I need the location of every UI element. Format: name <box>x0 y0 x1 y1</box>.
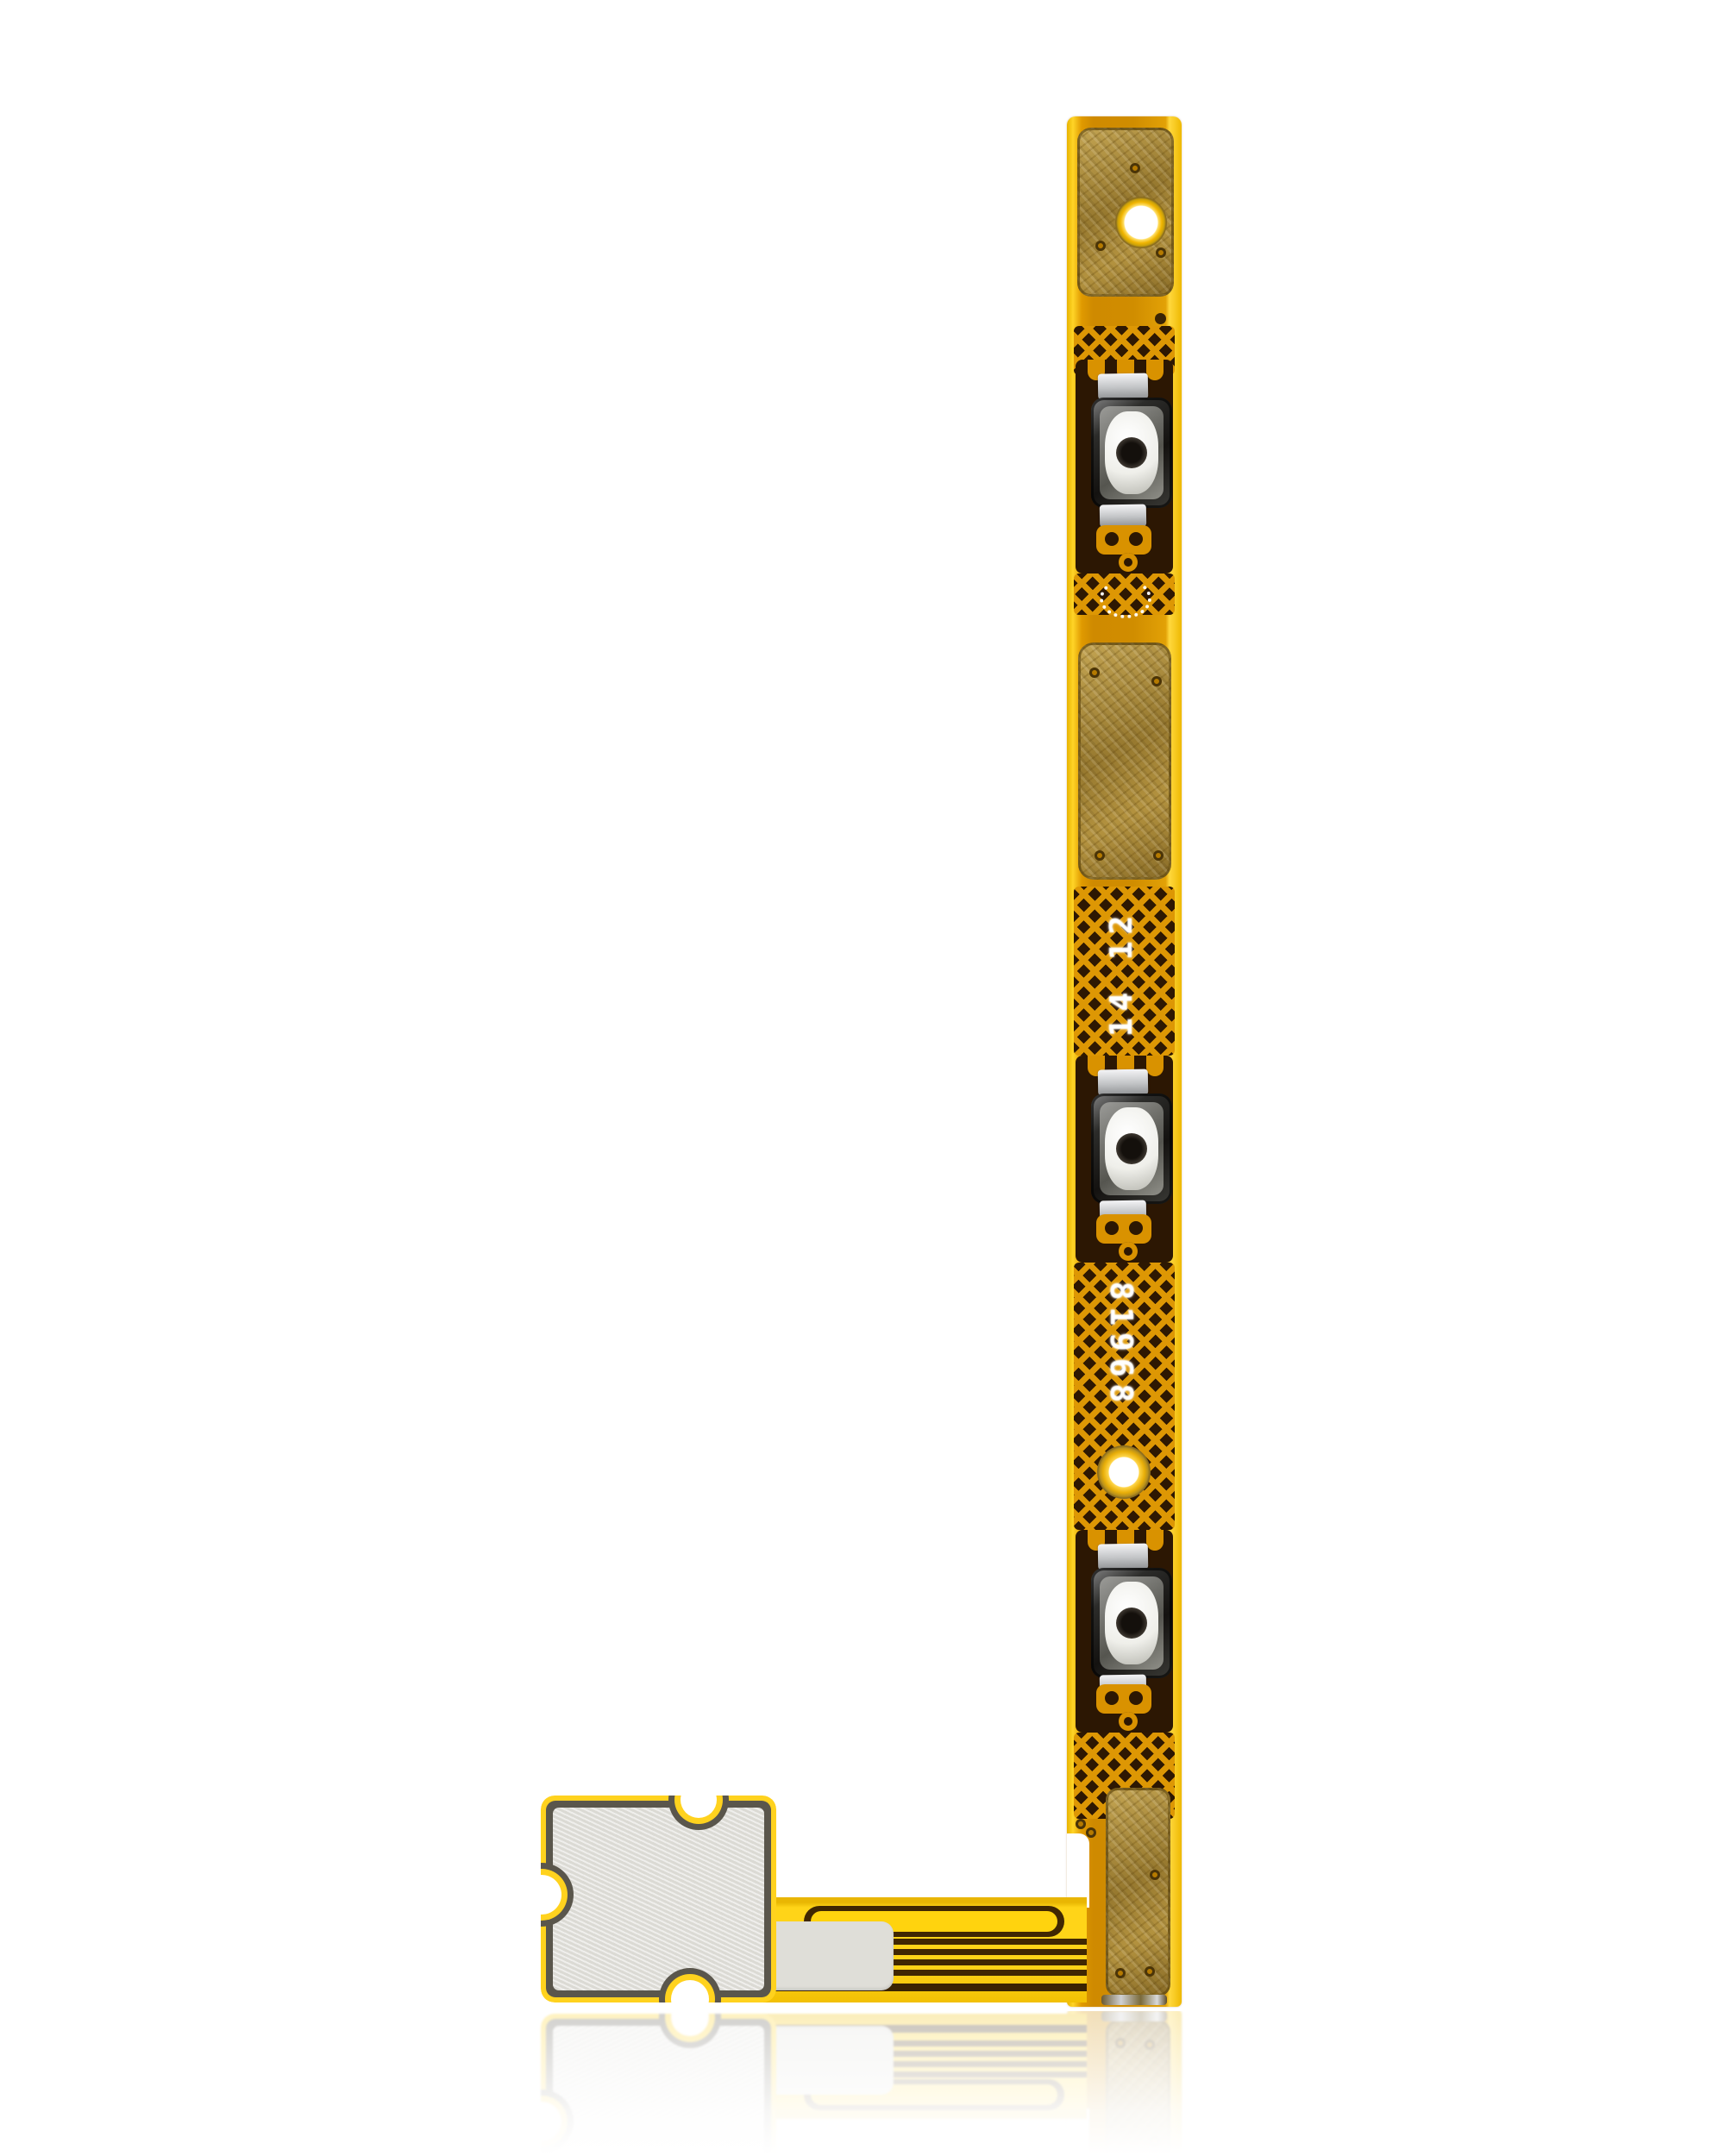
gold-pad-top <box>1077 128 1174 297</box>
via-hole <box>1145 1966 1155 1977</box>
via-hole <box>1155 313 1166 324</box>
tactile-switch-3 <box>1091 1568 1172 1678</box>
screw-hole <box>1115 197 1167 248</box>
via-hole <box>1151 676 1162 686</box>
contact-pad <box>1096 1684 1151 1714</box>
gold-pad-bottom <box>1106 1788 1170 1996</box>
pad-hole <box>1105 532 1119 546</box>
lot-marking: 14 12 <box>1104 887 1138 1059</box>
via-hole <box>1076 1819 1086 1829</box>
solder-glint <box>1101 1995 1167 2005</box>
switch-contact-dot <box>1116 1133 1147 1164</box>
via-hole <box>1156 248 1166 258</box>
pad-ring <box>1119 1712 1138 1731</box>
pad-ring <box>1119 553 1138 572</box>
flex-finger <box>1146 1530 1164 1551</box>
dotted-arc-marking <box>1100 579 1151 618</box>
contact-pad <box>1096 1214 1151 1244</box>
signal-trace <box>893 1970 1087 1976</box>
via-hole <box>1095 850 1105 861</box>
flex-finger <box>1146 360 1164 380</box>
serial-marking: 81968 <box>1104 1259 1138 1432</box>
switch-contact-dot <box>1116 1608 1147 1639</box>
switch-well-3 <box>1076 1530 1173 1733</box>
solder-tab <box>1100 505 1146 528</box>
solder-tab <box>1098 373 1149 399</box>
floor-reflection: 14 12 81968 <box>0 2011 1725 2154</box>
flex-finger <box>1146 1056 1164 1076</box>
solder-tab <box>1098 1069 1149 1095</box>
via-hole <box>1086 1827 1096 1838</box>
reflection-fade <box>0 2011 1725 2154</box>
adhesive-sticker <box>553 1808 764 1990</box>
solder-tab <box>1098 1543 1149 1570</box>
via-hole <box>1150 1870 1160 1880</box>
tactile-switch-2 <box>1091 1094 1172 1204</box>
pad-hole <box>1129 1691 1143 1705</box>
via-hole <box>1115 1968 1126 1978</box>
signal-trace <box>893 1959 1087 1965</box>
pad-hole <box>1105 1691 1119 1705</box>
product-photo: 14 12 81968 <box>0 0 1725 2156</box>
via-hole <box>1095 241 1106 251</box>
contact-pad <box>1096 525 1151 555</box>
gold-pad-middle <box>1078 642 1171 880</box>
signal-trace <box>893 1949 1087 1955</box>
connector-pad <box>541 1796 776 2002</box>
flex-vertical-strip: 14 12 81968 <box>1067 116 1182 2007</box>
pad-hole <box>1129 1221 1143 1235</box>
flex-cable-assembly: 14 12 81968 <box>0 0 1725 2009</box>
switch-well-1 <box>1076 360 1173 573</box>
pad-ring <box>1119 1242 1138 1261</box>
tactile-switch-1 <box>1091 398 1172 508</box>
switch-contact-dot <box>1116 437 1147 468</box>
alignment-hole <box>1097 1445 1151 1499</box>
via-hole <box>1153 850 1164 861</box>
via-hole <box>1089 667 1100 678</box>
pad-hole <box>1129 532 1143 546</box>
pad-hole <box>1105 1221 1119 1235</box>
signal-trace <box>893 1939 1087 1945</box>
adhesive-sticker-extension <box>768 1921 894 1990</box>
switch-well-2 <box>1076 1056 1173 1263</box>
via-hole <box>1130 163 1140 173</box>
